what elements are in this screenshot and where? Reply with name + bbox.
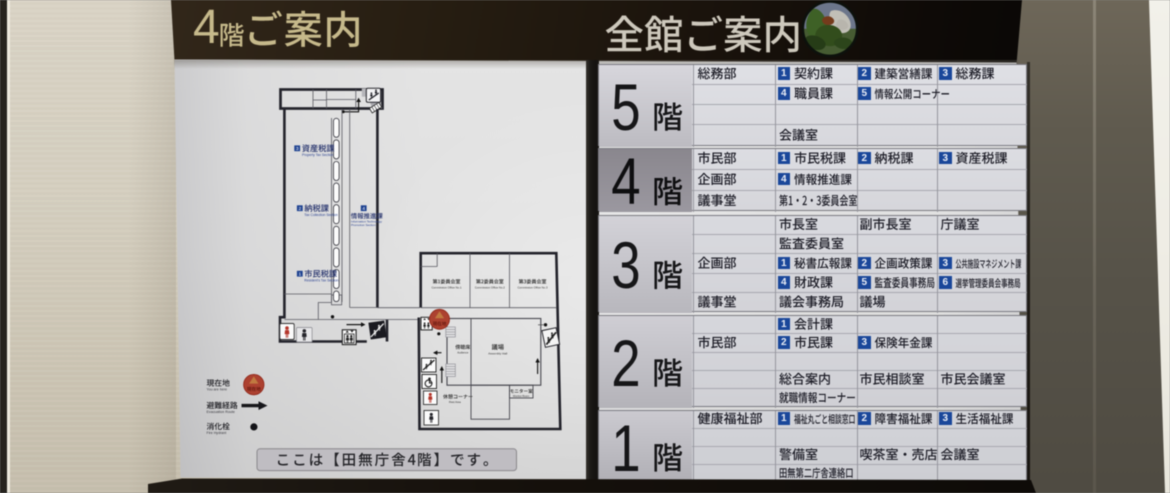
svg-text:4: 4 — [362, 206, 365, 212]
svg-text:Commission Office No.1: Commission Office No.1 — [431, 285, 462, 289]
svg-text:1: 1 — [298, 272, 301, 278]
svg-text:Evacuation Route: Evacuation Route — [207, 410, 235, 414]
svg-text:3: 3 — [296, 146, 299, 152]
svg-text:Commission Office No.2: Commission Office No.2 — [475, 285, 506, 289]
svg-text:Monitor Room: Monitor Room — [513, 394, 529, 398]
svg-text:You are here: You are here — [207, 388, 227, 392]
svg-text:Rest Area: Rest Area — [449, 400, 461, 404]
svg-text:Fire Hydrant: Fire Hydrant — [207, 431, 227, 435]
svg-text:2: 2 — [298, 206, 301, 212]
svg-text:Property Tax Section: Property Tax Section — [302, 153, 333, 157]
svg-text:Promotion Section: Promotion Section — [351, 223, 376, 227]
svg-text:Resident's Tax Section: Resident's Tax Section — [304, 279, 338, 283]
svg-text:Assembly Hall: Assembly Hall — [488, 352, 507, 356]
svg-text:Tax Collection Section: Tax Collection Section — [304, 213, 337, 217]
svg-text:Commission Office No.3: Commission Office No.3 — [517, 285, 548, 289]
svg-text:Audience: Audience — [457, 350, 469, 354]
